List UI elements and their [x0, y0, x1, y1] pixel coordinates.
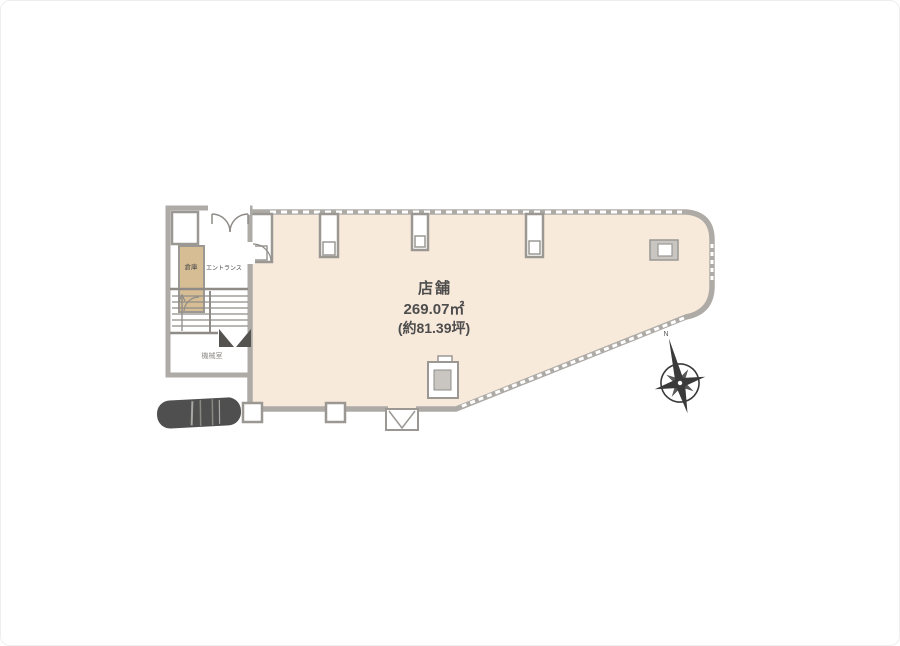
- equipment-box: [650, 240, 678, 260]
- column: [172, 212, 198, 244]
- column-notch: [323, 242, 335, 255]
- machine-room-label: 機械室: [202, 351, 223, 360]
- compass-south-point: [675, 382, 692, 414]
- column: [243, 403, 262, 422]
- unit-area-sqm-label: 269.07㎡: [404, 300, 465, 318]
- north-label: N: [663, 331, 668, 338]
- column-notch: [415, 236, 425, 247]
- entrance-hall-label: エントランス: [206, 265, 242, 272]
- column: [326, 403, 345, 422]
- shop-bottom-door: [386, 404, 418, 430]
- compass-north-spike: [665, 337, 685, 384]
- unit-name-label: 店舗: [418, 279, 452, 297]
- machine-room: 機械室: [202, 351, 223, 360]
- storage-room-label: 倉庫: [185, 262, 199, 271]
- door-gap: [245, 242, 255, 264]
- car-top-view-icon: [156, 397, 241, 429]
- unit-area-tsubo-label: (約81.39坪): [398, 320, 470, 336]
- door-gap: [208, 203, 250, 215]
- equipment-box-inner: [658, 244, 672, 256]
- floor-plan-page: 倉庫 エントランス: [0, 0, 900, 646]
- floor-plan-drawing: 倉庫 エントランス: [0, 0, 900, 646]
- column-notch: [529, 241, 540, 254]
- compass-rose-icon: N: [644, 331, 713, 419]
- pipe-space-box: [428, 356, 458, 398]
- car-body: [156, 397, 241, 429]
- ps-inner: [434, 370, 451, 390]
